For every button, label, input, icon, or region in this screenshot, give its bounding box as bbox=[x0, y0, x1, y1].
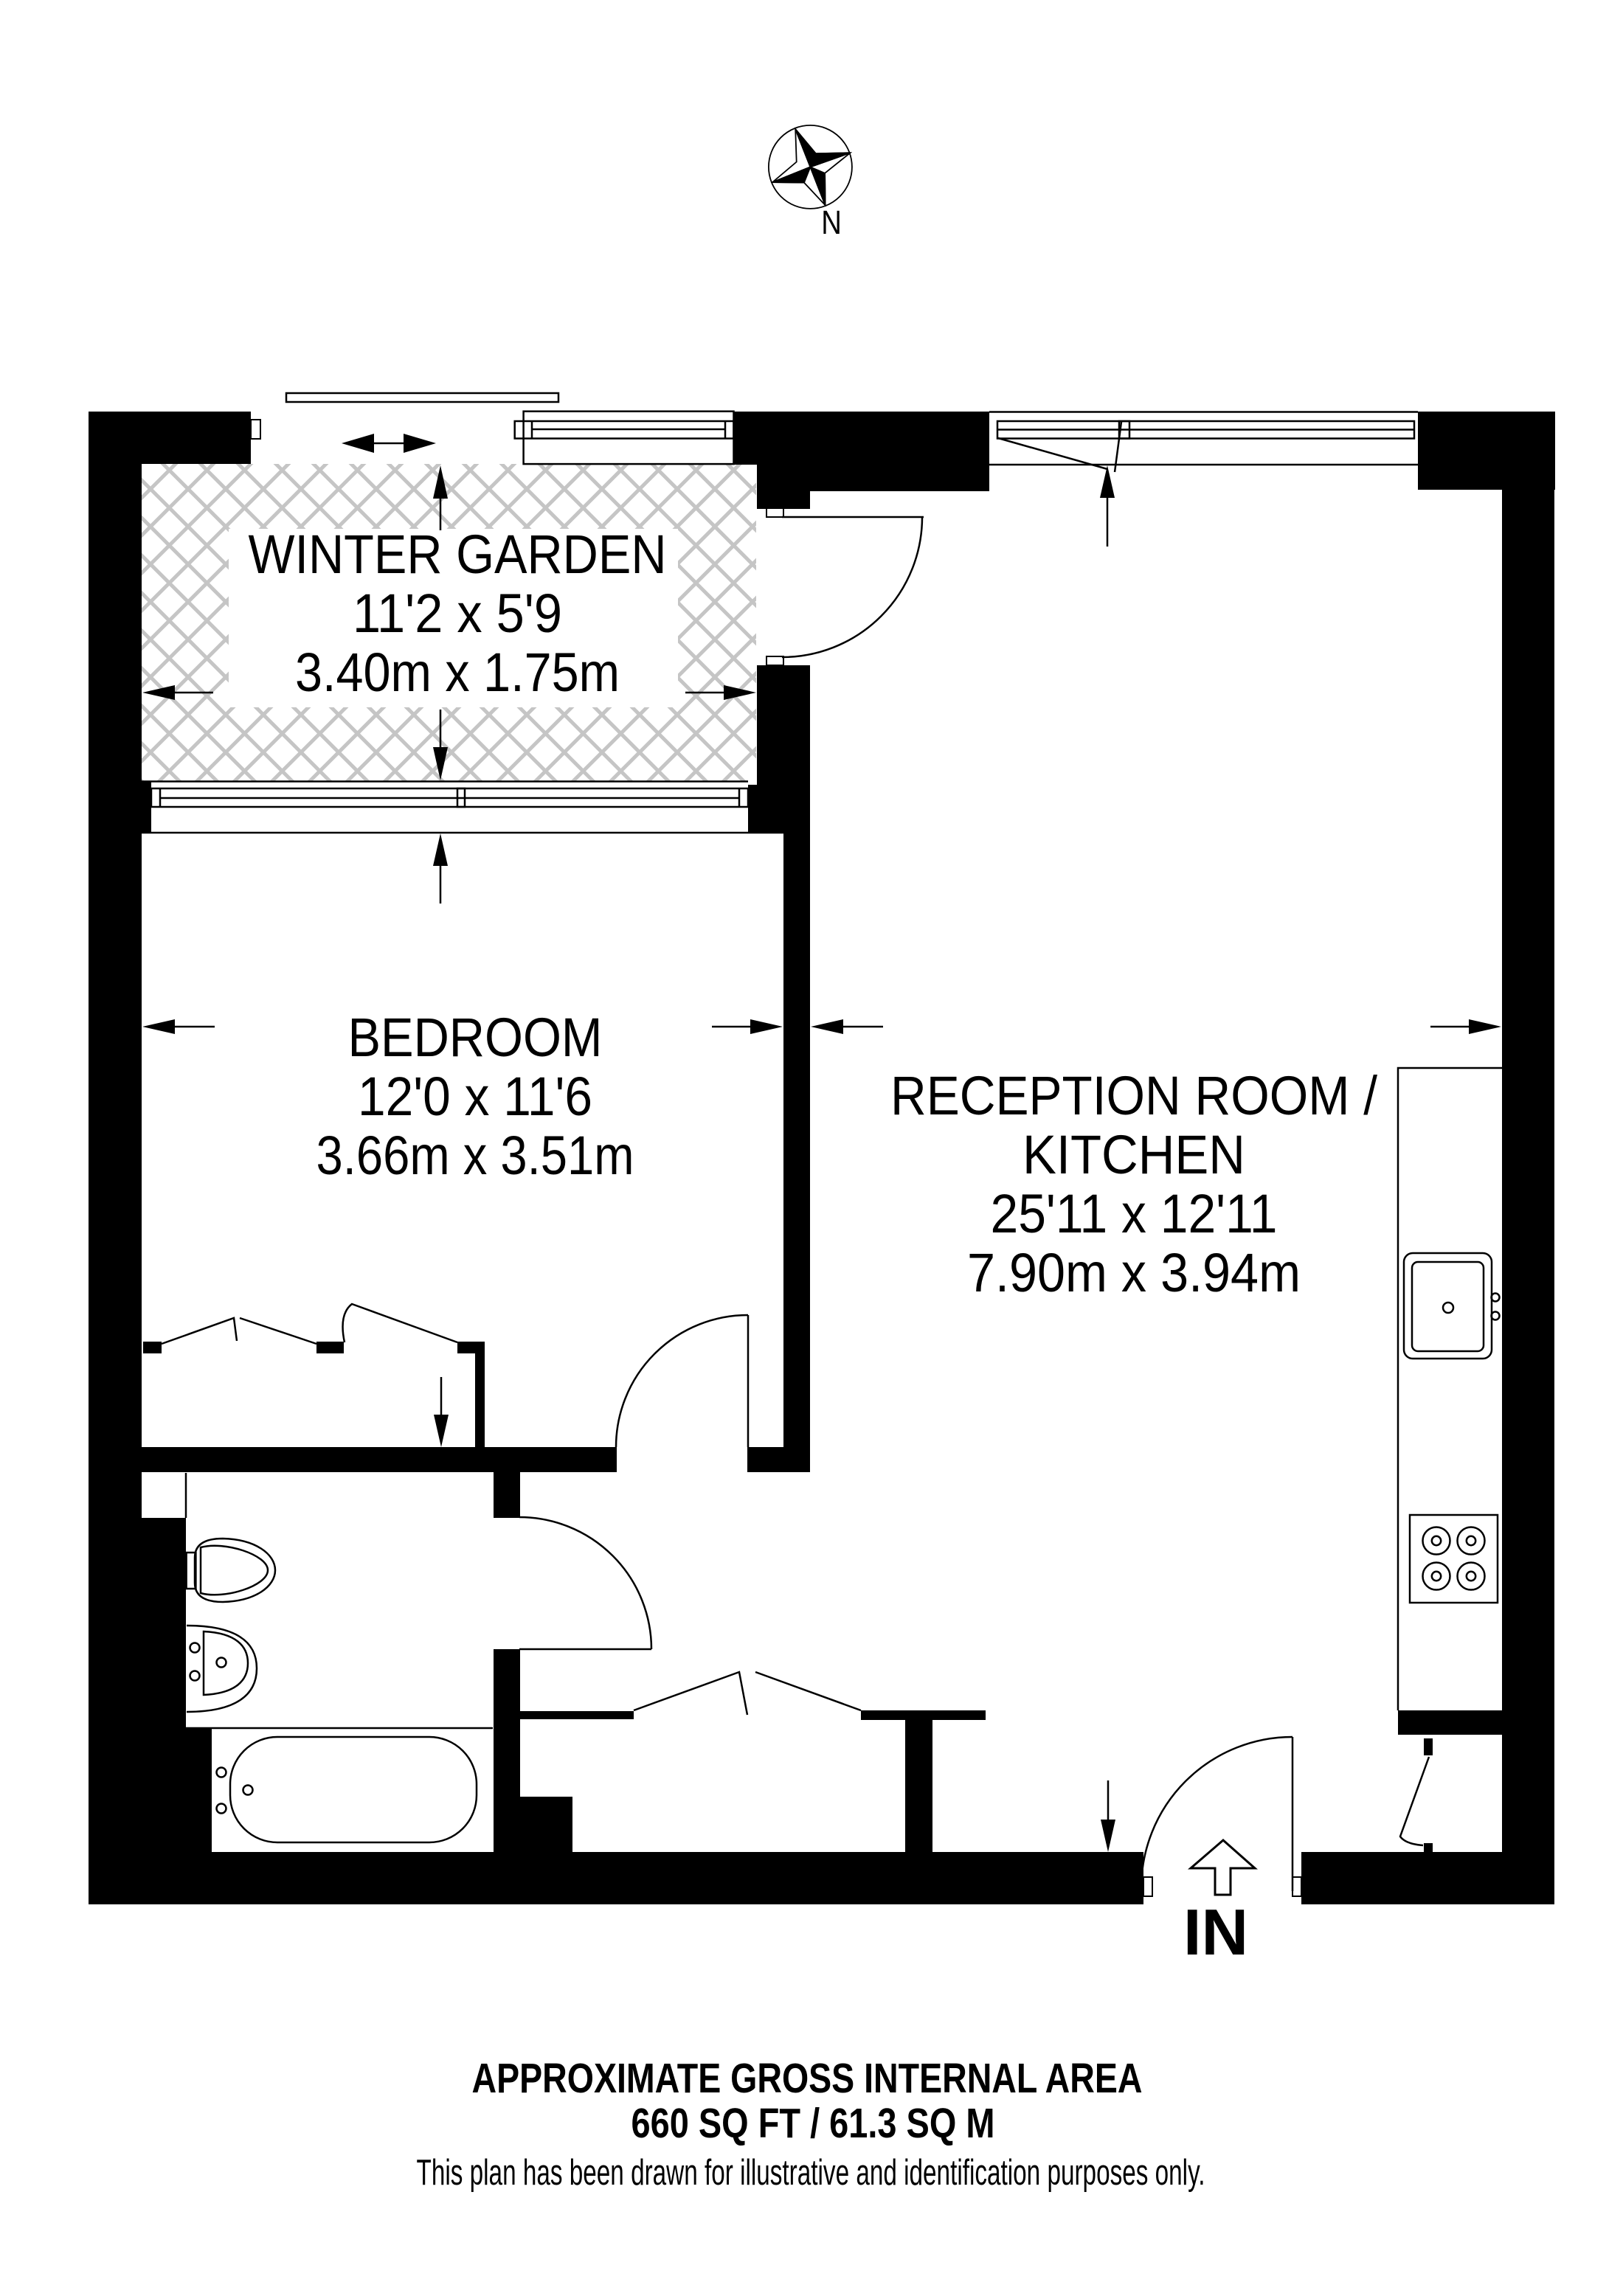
svg-text:BEDROOM: BEDROOM bbox=[348, 1007, 603, 1068]
svg-text:WINTER GARDEN: WINTER GARDEN bbox=[249, 524, 667, 585]
svg-text:25'11 x 12'11: 25'11 x 12'11 bbox=[991, 1183, 1278, 1244]
svg-text:RECEPTION ROOM /: RECEPTION ROOM / bbox=[890, 1065, 1377, 1126]
svg-text:7.90m x 3.94m: 7.90m x 3.94m bbox=[967, 1242, 1301, 1303]
svg-text:APPROXIMATE GROSS INTERNAL ARE: APPROXIMATE GROSS INTERNAL AREA bbox=[472, 2055, 1143, 2102]
svg-text:3.40m x 1.75m: 3.40m x 1.75m bbox=[295, 642, 620, 703]
svg-text:11'2 x 5'9: 11'2 x 5'9 bbox=[353, 583, 562, 644]
svg-text:660 SQ FT / 61.3 SQ M: 660 SQ FT / 61.3 SQ M bbox=[631, 2100, 995, 2147]
svg-text:KITCHEN: KITCHEN bbox=[1022, 1124, 1245, 1185]
svg-text:IN: IN bbox=[1183, 1896, 1248, 1969]
svg-text:3.66m x 3.51m: 3.66m x 3.51m bbox=[316, 1125, 634, 1186]
svg-text:12'0 x 11'6: 12'0 x 11'6 bbox=[358, 1066, 592, 1127]
svg-text:This plan has been drawn for i: This plan has been drawn for illustrativ… bbox=[417, 2153, 1205, 2193]
svg-text:N: N bbox=[821, 204, 842, 241]
